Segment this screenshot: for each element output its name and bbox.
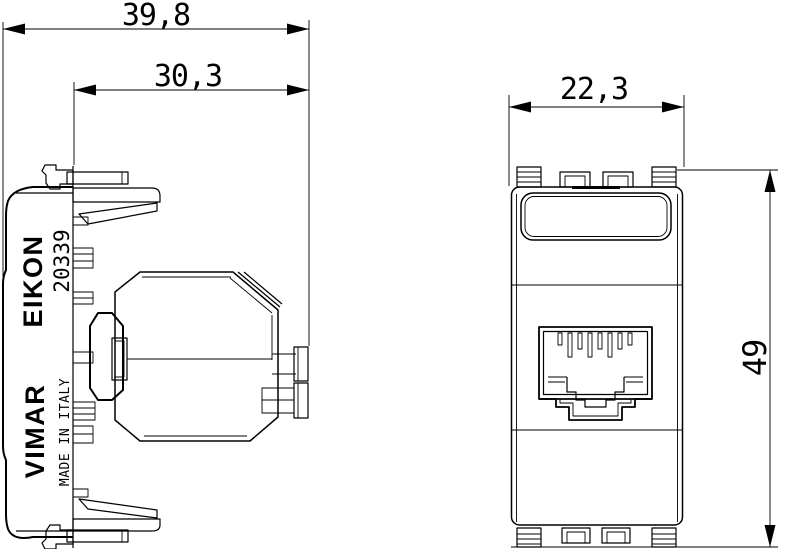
label-eikon: EIKON [18, 234, 48, 327]
label-vimar: VIMAR [20, 384, 50, 479]
dim-22-3-label: 22,3 [560, 72, 628, 107]
technical-drawing-page: EIKON VIMAR 20339 MADE IN ITALY [0, 0, 786, 549]
label-part-number: 20339 [50, 229, 74, 292]
dim-30-3-label: 30,3 [154, 59, 222, 94]
label-made-in-italy: MADE IN ITALY [58, 378, 73, 486]
rj45-module-drawing: EIKON VIMAR 20339 MADE IN ITALY [0, 0, 786, 549]
dim-39-8-label: 39,8 [122, 0, 190, 33]
drawing-background [0, 0, 786, 549]
dim-49-label: 49 [736, 340, 774, 377]
